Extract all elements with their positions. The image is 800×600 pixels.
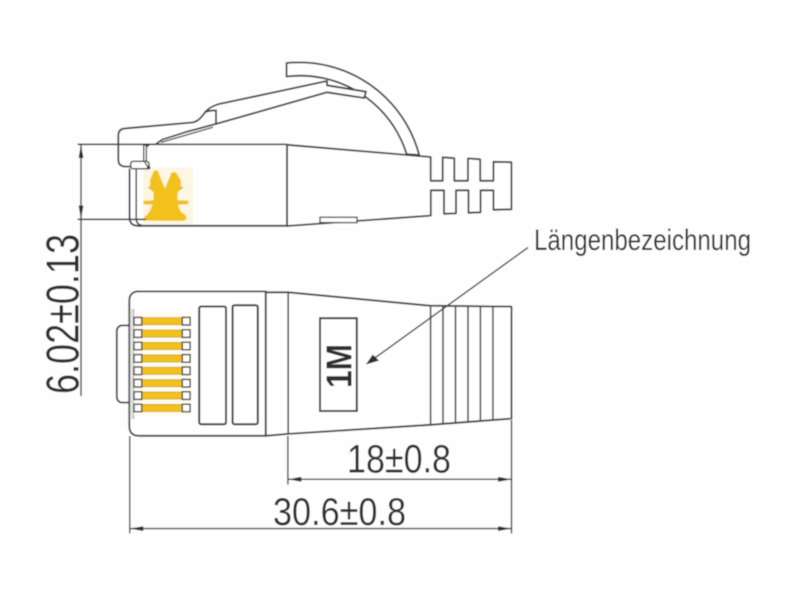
svg-text:Längenbezeichnung: Längenbezeichnung xyxy=(534,224,751,257)
svg-text:18±0.8: 18±0.8 xyxy=(347,438,451,482)
svg-text:6.02±0.13: 6.02±0.13 xyxy=(37,234,89,394)
svg-text:30.6±0.8: 30.6±0.8 xyxy=(273,491,406,534)
svg-text:1M: 1M xyxy=(319,344,360,388)
